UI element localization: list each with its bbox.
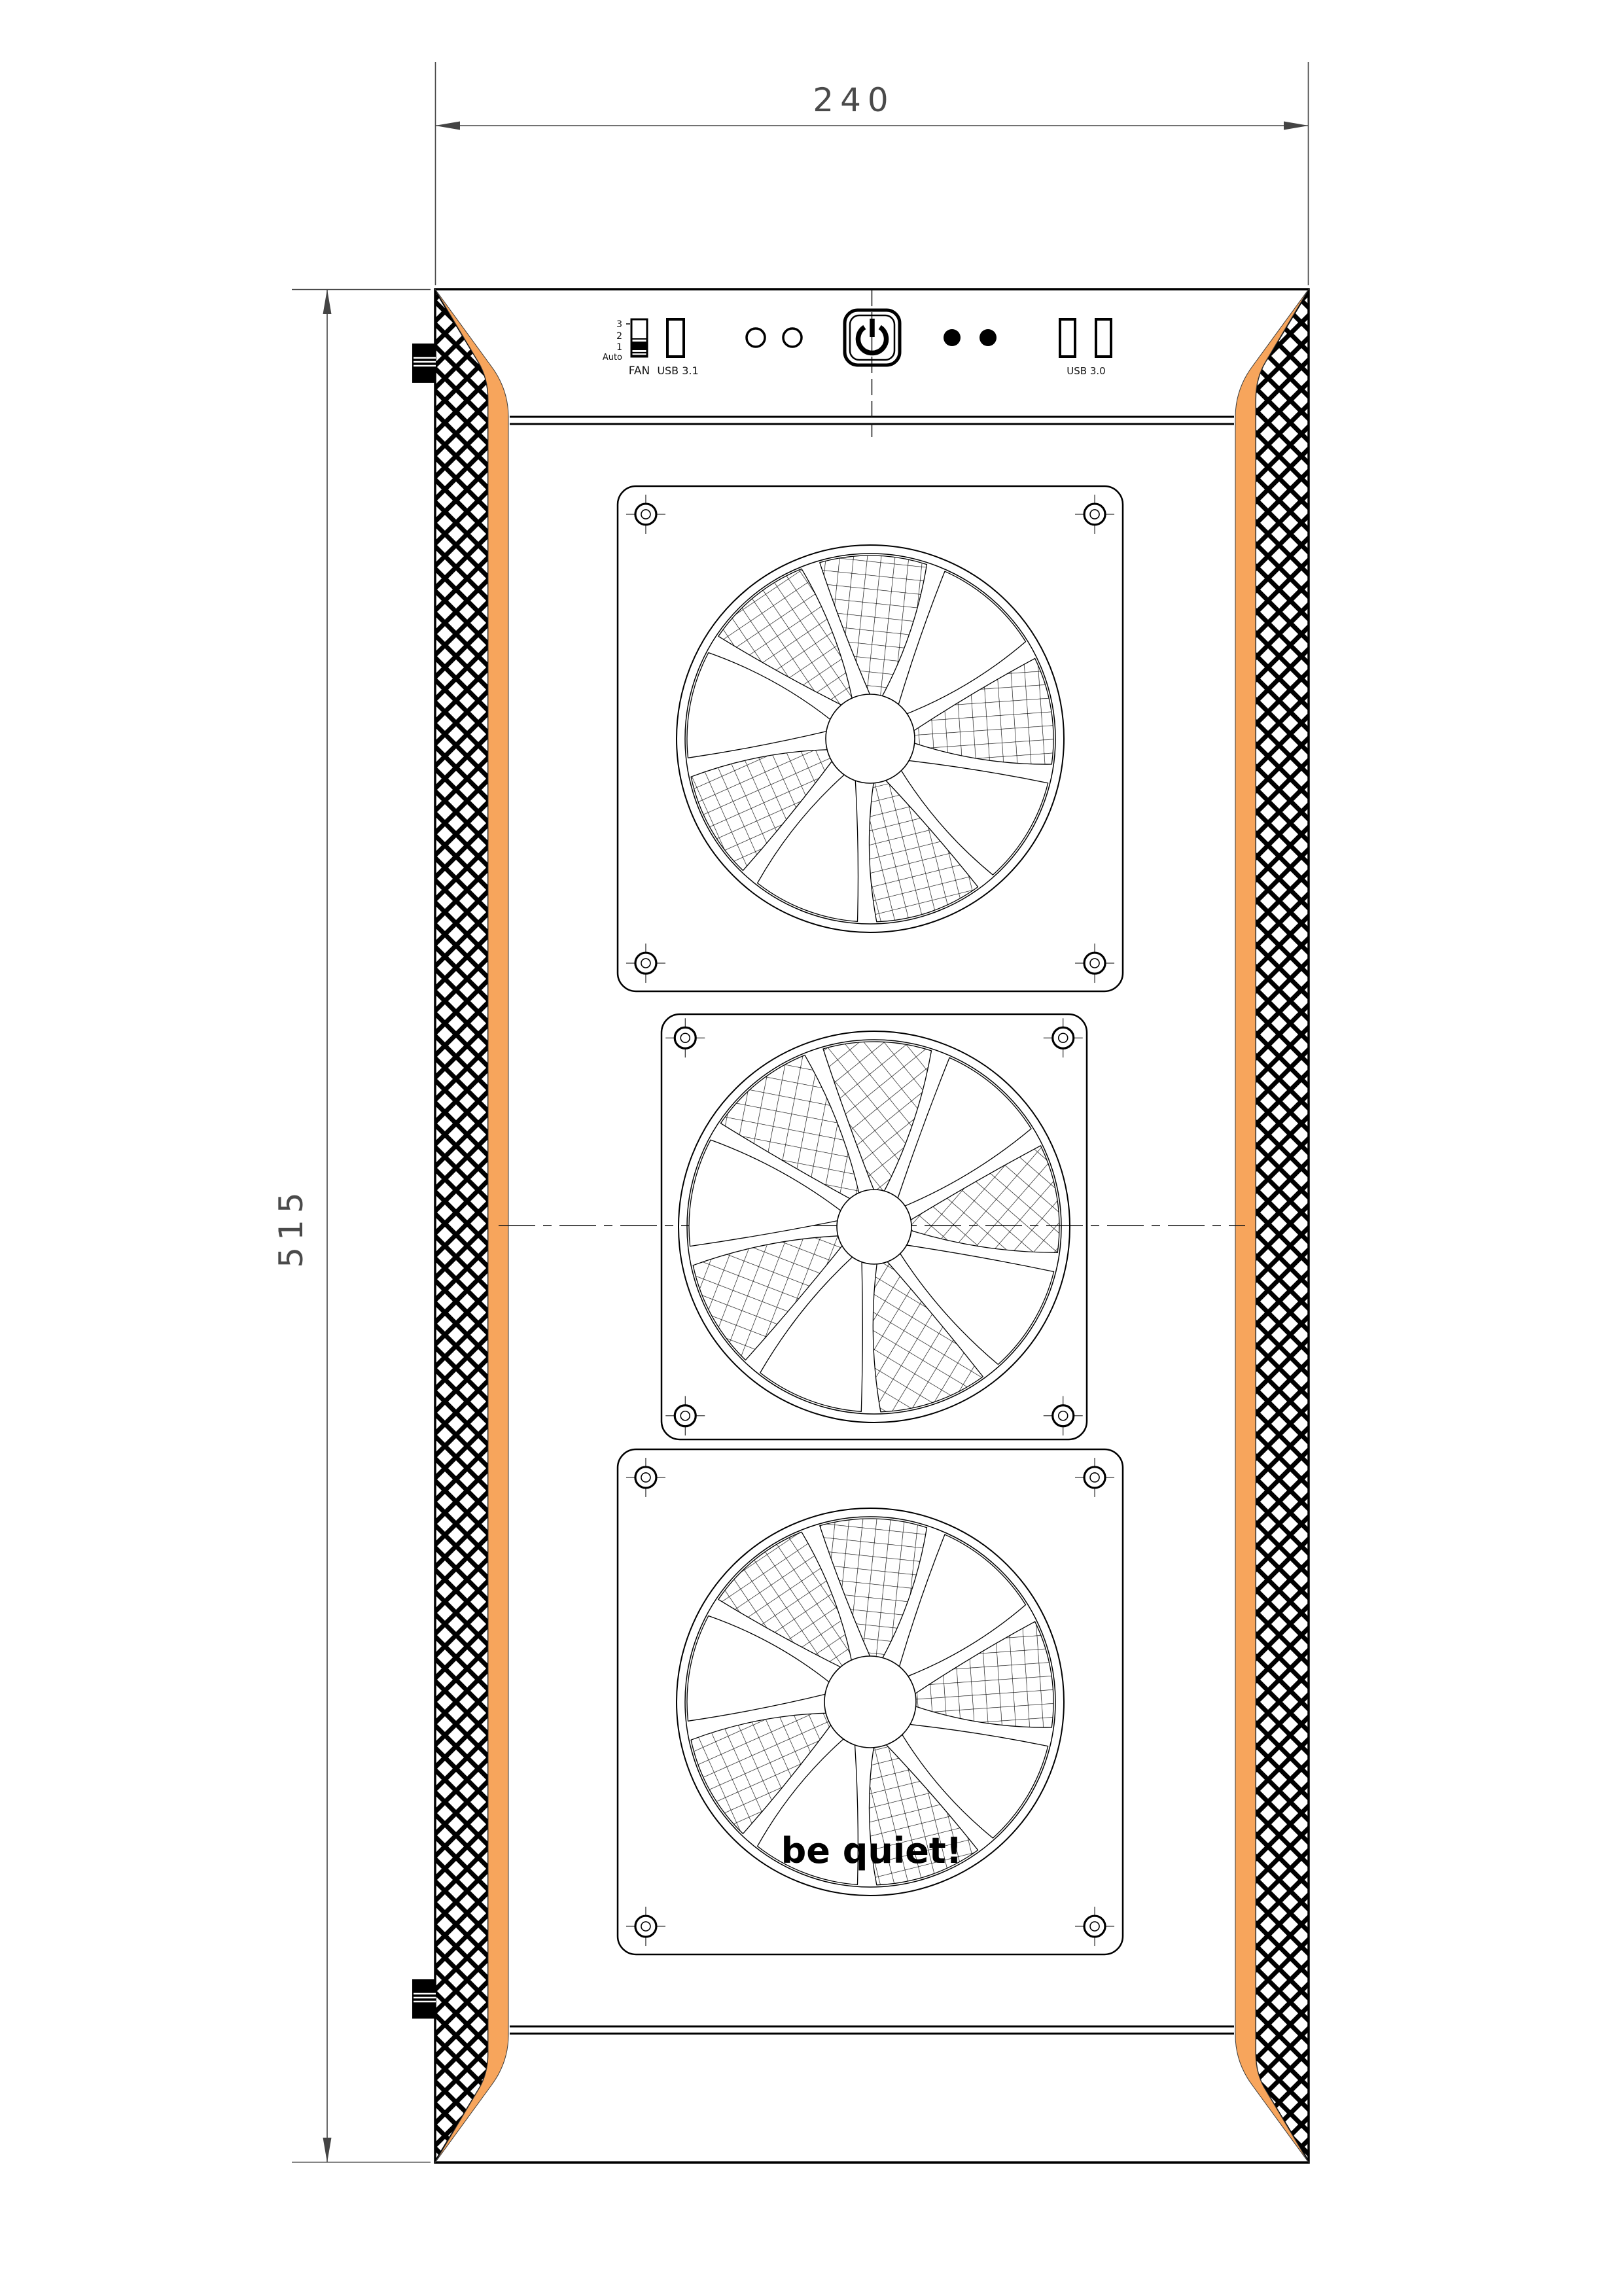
usb31-port: USB 3.1 bbox=[657, 319, 698, 377]
dim-width-label: 240 bbox=[813, 81, 894, 119]
usb30-port-1 bbox=[1060, 319, 1075, 357]
fan-switch-pos-3: 3 bbox=[616, 319, 622, 330]
dim-height: 515 bbox=[272, 289, 431, 2163]
latch-bottom bbox=[412, 1979, 436, 2019]
mesh-panel-right bbox=[1256, 291, 1309, 2161]
usb30-label: USB 3.0 bbox=[1067, 365, 1105, 377]
fan-top bbox=[618, 486, 1123, 991]
fan-switch-pos-2: 2 bbox=[616, 331, 622, 342]
dim-height-label: 515 bbox=[272, 1186, 310, 1267]
usb30-ports: USB 3.0 bbox=[1060, 319, 1111, 377]
audio-jack-1 bbox=[747, 328, 765, 347]
fan-switch-pos-1: 1 bbox=[616, 342, 622, 353]
dim-width: 240 bbox=[435, 62, 1309, 285]
led-2 bbox=[980, 329, 997, 346]
technical-drawing: 240 515 bbox=[0, 0, 1624, 2296]
usb31-label: USB 3.1 bbox=[657, 364, 698, 377]
audio-jack-2 bbox=[783, 328, 802, 347]
usb30-port-2 bbox=[1096, 319, 1111, 357]
top-panel-divider bbox=[510, 417, 1234, 424]
fan-switch-label: FAN bbox=[629, 364, 650, 378]
fan-speed-switch: 3 2 1 Auto FAN bbox=[603, 319, 650, 378]
fan-switch-pos-auto: Auto bbox=[603, 353, 622, 362]
brand-logo: be quiet! bbox=[781, 1830, 962, 1871]
mesh-panel-left bbox=[435, 291, 488, 2161]
latch-top bbox=[412, 344, 436, 383]
bottom-panel-divider bbox=[510, 2026, 1234, 2034]
fan-bottom bbox=[618, 1449, 1123, 1954]
led-1 bbox=[944, 329, 961, 346]
fan-middle bbox=[662, 1014, 1087, 1439]
io-panel: 3 2 1 Auto FAN USB 3.1 bbox=[603, 310, 1111, 378]
